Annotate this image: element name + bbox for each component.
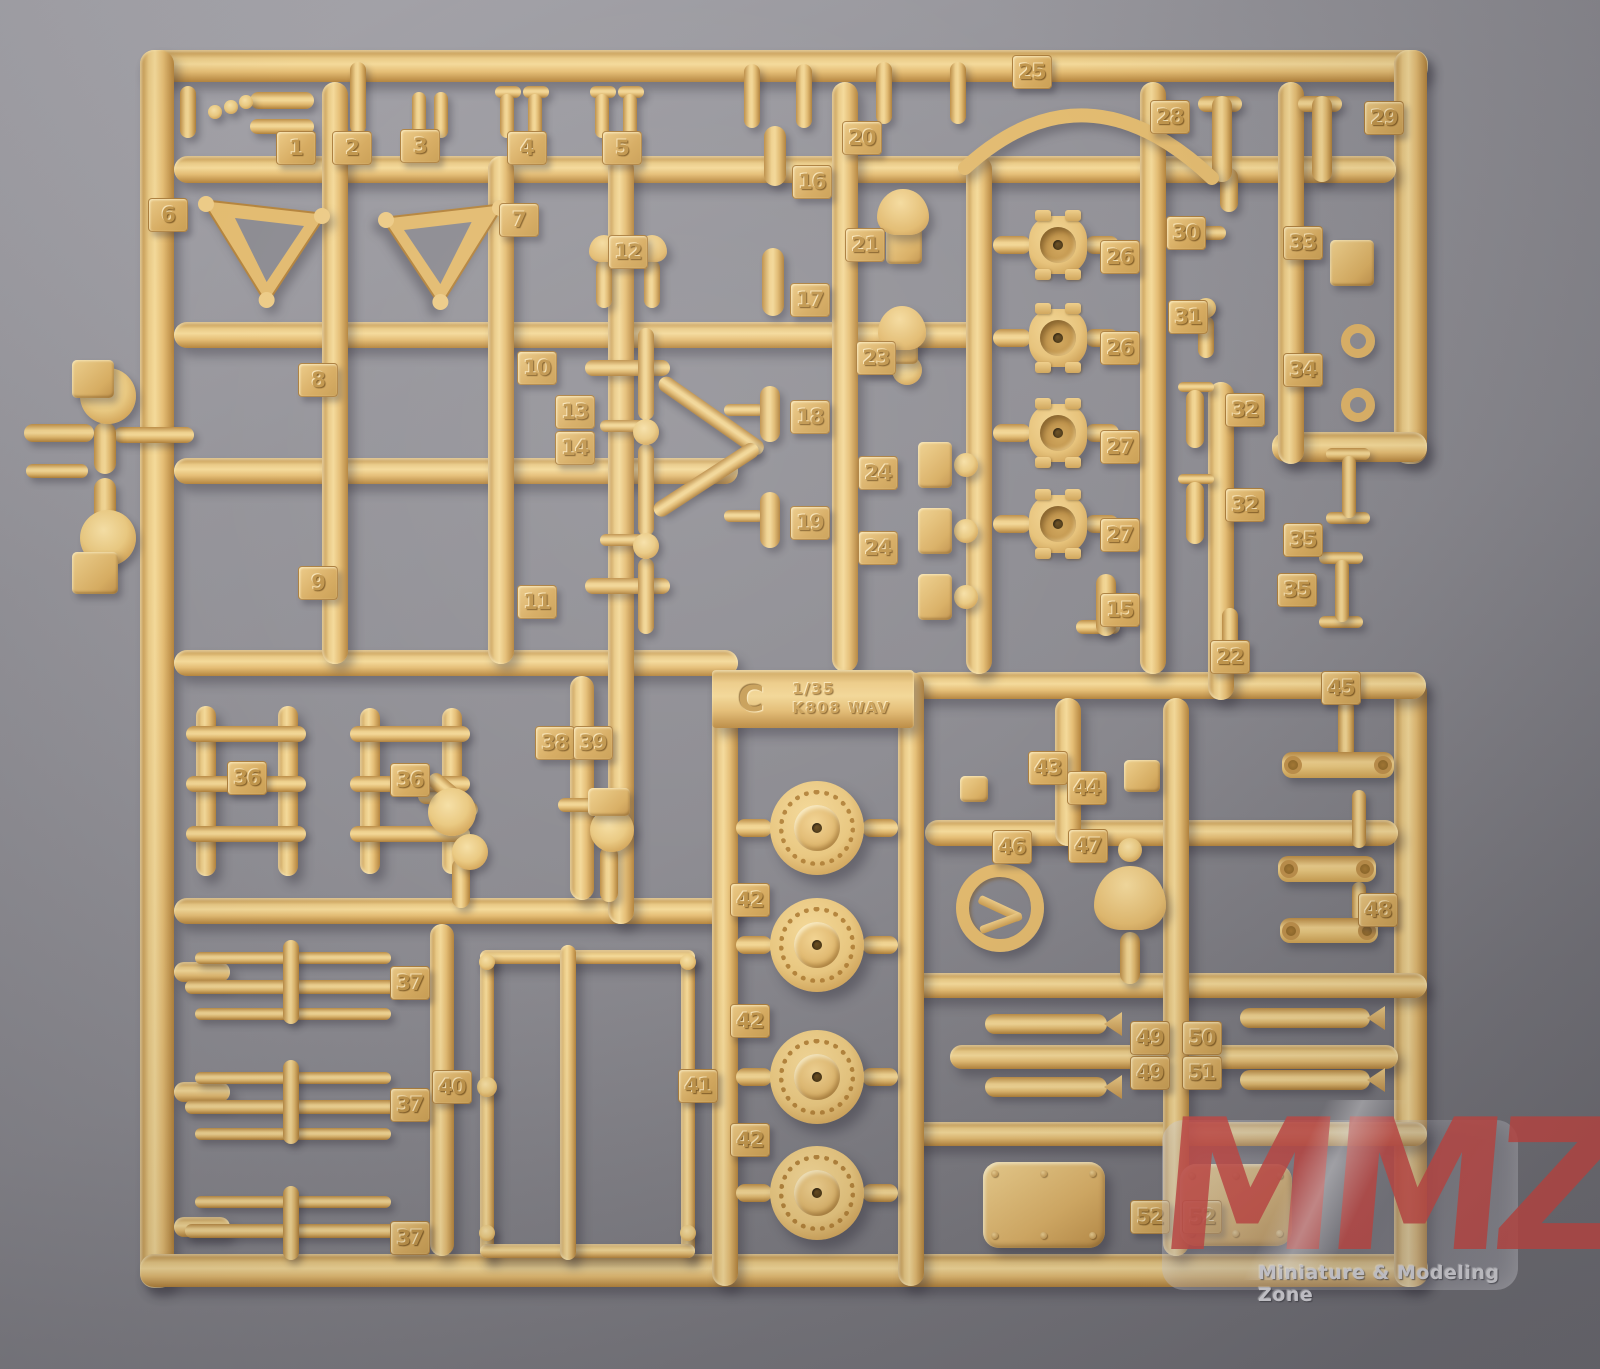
part-rod [94,422,116,474]
part-block [72,552,118,594]
part-disc [1118,838,1142,862]
hatch-rivet [1040,1232,1047,1239]
part-number-tag: 41 [678,1069,718,1103]
part-rod [600,846,618,902]
hatch-rivet [1089,1232,1096,1239]
part-number-tag: 49 [1130,1021,1170,1055]
hatch-rivet [991,1170,998,1177]
part-rod [180,86,196,138]
part-number-tag: 42 [730,883,770,917]
hub-lug [1065,489,1081,500]
part-disc [680,1225,696,1241]
part-number-tag: 34 [1283,353,1323,387]
part-number-tag: 49 [1130,1056,1170,1090]
part-rod [114,427,194,443]
part-number-tag: 48 [1358,893,1398,927]
barrel-muzzle-tip [1104,1075,1122,1099]
watermark-tagline: Miniature & Modeling Zone [1258,1262,1518,1306]
barrel-muzzle-tip [1367,1006,1385,1030]
part-block [918,508,952,554]
hatch-rivet [1040,1170,1047,1177]
part-rod [186,826,306,842]
part-disc [479,1225,495,1241]
part-number-tag: 28 [1150,100,1190,134]
part-number-tag: 1 [276,131,316,165]
part-rod [283,1060,299,1144]
part-number-tag: 26 [1100,331,1140,365]
part-number-tag: 14 [555,431,595,465]
part-number-tag: 37 [390,1221,430,1255]
part-number-tag: 9 [298,566,338,600]
hub-lug [1035,303,1051,314]
part-number-tag: 39 [573,726,613,760]
hub-lug [1065,398,1081,409]
linkage-eye [1280,860,1298,878]
part-ring [1341,324,1375,358]
hub-lug [1035,457,1051,468]
part-number-tag: 16 [792,165,832,199]
part-rod [760,492,780,548]
part-block [588,788,630,816]
part-turret-ring [956,864,1044,952]
part-number-tag: 12 [608,235,648,269]
part-rod [764,126,786,186]
hub-hole [1053,333,1063,343]
hub-hole [1053,519,1063,529]
barrel-muzzle-tip [1104,1012,1122,1036]
hatch-rivet [991,1232,998,1239]
part-number-tag: 6 [148,198,188,232]
part-number-tag: 22 [1210,640,1250,674]
sprue-label-plate: C 1/35 K808 WAV [712,670,914,728]
part-number-tag: 4 [507,131,547,165]
part-sprue-gate [993,515,1031,533]
part-number-tag: 35 [1283,523,1323,557]
part-number-tag: 32 [1225,488,1265,522]
part-number-tag: 45 [1321,671,1361,705]
part-number-tag: 31 [1168,300,1208,334]
part-disc [954,585,978,609]
part-number-tag: 23 [856,341,896,375]
kit-code: K808 WAV [792,699,890,717]
part-rod [744,64,760,128]
part-number-tag: 13 [555,395,595,429]
part-number-tag: 40 [432,1070,472,1104]
linkage-eye [1284,756,1302,774]
part-disc [479,954,495,970]
part-sprue-gate [736,819,772,837]
hub-lug [1065,210,1081,221]
wheel-hub-hole [812,823,822,833]
part-dome [877,189,929,236]
part-rod [585,578,670,594]
hatch-rivet [1089,1170,1096,1177]
part-block [1330,240,1374,286]
part-number-tag: 50 [1182,1021,1222,1055]
part-rod [283,940,299,1024]
sprue-runner [480,950,695,964]
part-disc [633,533,659,559]
part-rod [585,360,670,376]
part-number-tag: 18 [790,400,830,434]
part-rod [1186,482,1204,544]
sprue-runner [480,950,494,1258]
part-rod [760,386,780,442]
part-rod [26,464,88,478]
part-dome [1094,866,1166,931]
part-number-tag: 37 [390,966,430,1000]
part-bracket [198,196,330,308]
part-rod [950,62,966,124]
watermark-logo: MMZ [1152,1096,1528,1276]
watermark-letter: Z [1485,1080,1600,1292]
part-wheel-hub [1029,495,1087,553]
part-number-tag: 2 [332,131,372,165]
part-gun-barrel [1240,1008,1370,1028]
part-number-tag: 37 [390,1088,430,1122]
part-wheel-hub [1029,309,1087,367]
part-rod [283,1186,299,1260]
part-number-tag: 43 [1028,751,1068,785]
part-linkage-arm [1278,856,1376,882]
part-disc [224,100,238,114]
part-disc [954,519,978,543]
part-rod [762,248,784,316]
part-wheel-hub [1029,216,1087,274]
hub-hole [1053,240,1063,250]
part-number-tag: 8 [298,363,338,397]
part-sprue-gate [736,936,772,954]
part-disc [477,1077,497,1097]
part-rod [1186,390,1204,448]
part-number-tag: 42 [730,1004,770,1038]
part-sprue-gate [862,936,898,954]
sprue-photo: 1234567121617181920212324242528292626272… [0,0,1600,1369]
watermark-letter: M [1151,1080,1337,1292]
part-rod [1342,456,1356,518]
part-bracket [378,200,508,310]
sprue-runner [480,1244,695,1258]
part-number-tag: 32 [1225,393,1265,427]
part-rod [1352,790,1366,848]
part-number-tag: 7 [499,203,539,237]
part-number-tag: 17 [790,283,830,317]
part-number-tag: 24 [858,456,898,490]
part-number-tag: 46 [992,830,1032,864]
part-rod [186,726,306,742]
part-sprue-gate [736,1184,772,1202]
part-rod [250,92,314,109]
hub-lug [1035,548,1051,559]
sprue-label-text: 1/35 K808 WAV [792,680,890,718]
part-gun-barrel [985,1014,1107,1034]
linkage-eye [1282,922,1300,940]
part-number-tag: 29 [1364,101,1404,135]
sprue-runner [560,945,576,1260]
part-number-tag: 27 [1100,518,1140,552]
part-disc [633,419,659,445]
part-number-tag: 24 [858,531,898,565]
hub-lug [1035,210,1051,221]
hub-lug [1065,548,1081,559]
hub-lug [1035,269,1051,280]
part-number-tag: 38 [535,726,575,760]
part-rod [724,404,764,416]
kit-scale: 1/35 [792,680,835,698]
part-block [918,574,952,620]
hub-lug [1035,362,1051,373]
part-rod [876,62,892,124]
part-rod [1312,96,1332,182]
part-sprue-gate [993,329,1031,347]
sprue-runner [140,50,174,1288]
part-number-tag: 42 [730,1123,770,1157]
part-sprue-gate [736,1068,772,1086]
part-ring [1341,388,1375,422]
part-rod [1335,560,1349,622]
part-hatch [983,1162,1105,1248]
part-number-tag: 44 [1067,771,1107,805]
wheel-hub-hole [812,1072,822,1082]
part-road-wheel [770,1146,864,1240]
sprue-runner [898,672,924,1286]
part-sprue-gate [862,1068,898,1086]
part-block [960,776,988,802]
part-rod [724,510,764,522]
wheel-hub-hole [812,1188,822,1198]
part-rod [796,64,812,128]
part-sprue-gate [862,1184,898,1202]
turret-ring-spoke [979,912,1023,935]
sprue-runner [174,1082,230,1102]
part-number-tag: 21 [845,228,885,262]
part-rod [24,424,94,442]
part-wheel-hub [1029,404,1087,462]
part-disc [239,95,253,109]
hub-lug [1035,398,1051,409]
part-number-tag: 11 [517,585,557,619]
sprue-letter-mark: C [738,679,764,720]
linkage-eye [1356,860,1374,878]
part-number-tag: 36 [227,761,267,795]
sprue-runner [174,650,738,676]
part-rod [1120,932,1140,984]
part-rod [638,328,654,420]
part-gun-barrel [985,1077,1107,1097]
part-rod [350,62,366,134]
part-rod [638,444,654,536]
sprue-runner [1140,82,1166,674]
part-disc [452,834,488,870]
part-block [1124,760,1160,792]
part-sprue-gate [993,236,1031,254]
part-number-tag: 35 [1277,573,1317,607]
part-sprue-gate [993,424,1031,442]
hub-lug [1065,457,1081,468]
part-number-tag: 20 [842,121,882,155]
part-disc [954,453,978,477]
sprue-runner [681,950,695,1258]
part-disc [680,954,696,970]
part-road-wheel [770,1030,864,1124]
part-road-wheel [770,781,864,875]
part-number-tag: 27 [1100,430,1140,464]
part-number-tag: 25 [1012,55,1052,89]
watermark-letter: M [1318,1080,1504,1292]
part-block [918,442,952,488]
part-linkage-arm [1282,752,1394,778]
part-number-tag: 15 [1100,593,1140,627]
linkage-eye [1374,756,1392,774]
sprue-runner [174,962,230,982]
hub-lug [1065,269,1081,280]
part-number-tag: 26 [1100,240,1140,274]
part-rod [1212,96,1232,182]
part-number-tag: 3 [400,129,440,163]
part-rod [350,726,470,742]
hub-lug [1065,303,1081,314]
part-number-tag: 30 [1166,216,1206,250]
part-number-tag: 47 [1068,829,1108,863]
part-disc [428,788,476,836]
part-number-tag: 10 [517,351,557,385]
wheel-hub-hole [812,940,822,950]
part-number-tag: 5 [602,131,642,165]
sprue-runner [712,672,738,1286]
hub-hole [1053,428,1063,438]
part-number-tag: 33 [1283,226,1323,260]
sprue-runner [1278,82,1304,464]
part-sprue-gate [862,819,898,837]
hub-lug [1065,362,1081,373]
part-number-tag: 19 [790,506,830,540]
part-road-wheel [770,898,864,992]
sprue-runner [832,82,858,672]
part-block [72,360,114,398]
hub-lug [1035,489,1051,500]
sprue-runner [140,50,1428,82]
part-disc [208,105,222,119]
part-rod [638,558,654,634]
part-number-tag: 36 [390,763,430,797]
